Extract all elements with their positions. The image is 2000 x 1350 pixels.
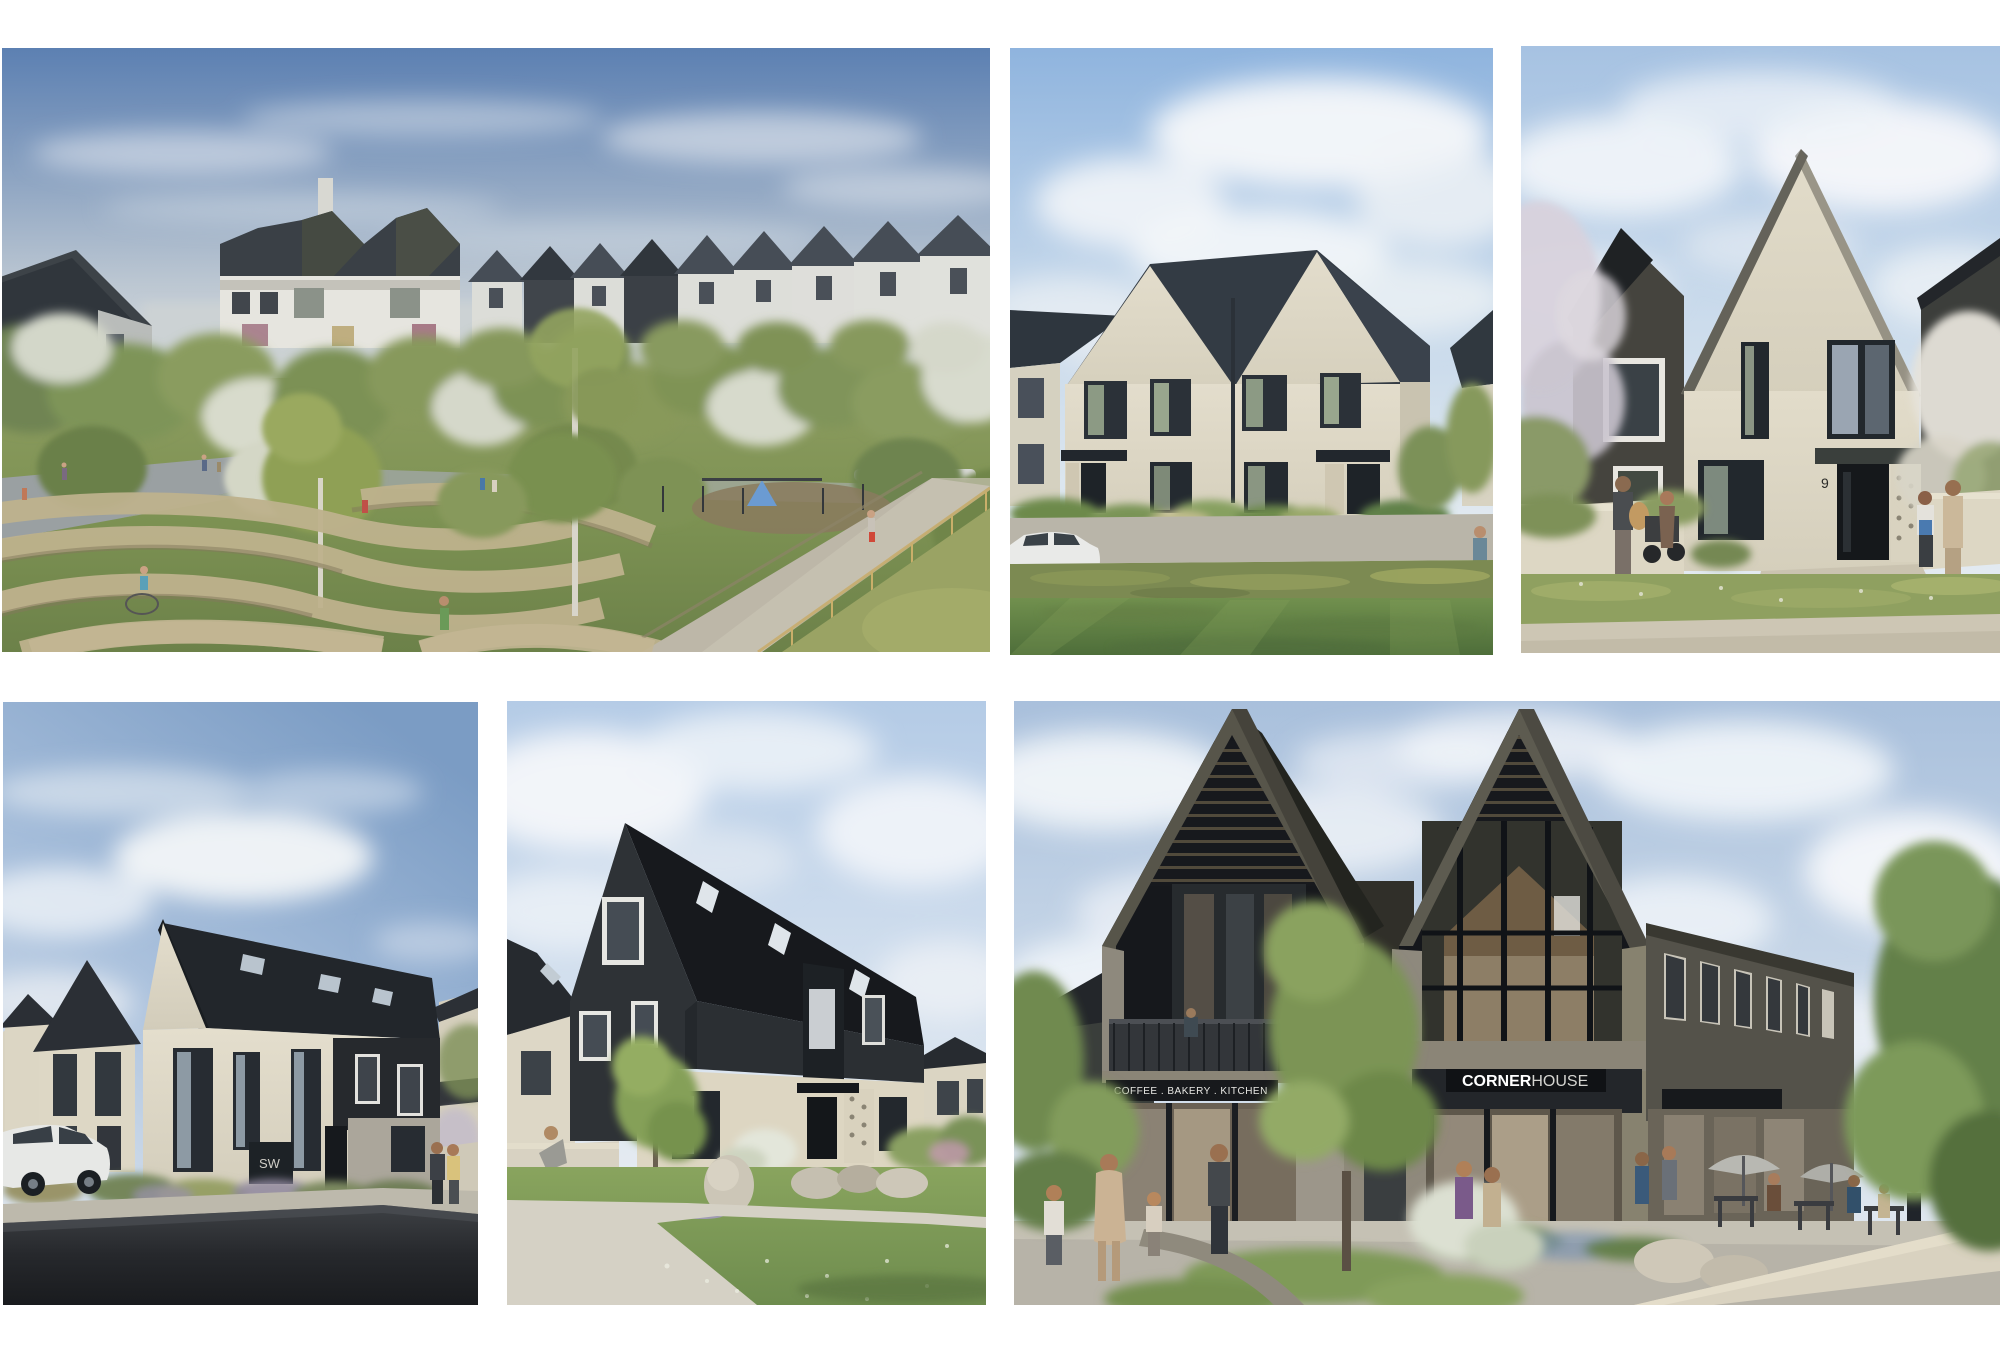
svg-text:CORNERHOUSE: CORNERHOUSE: [1462, 1073, 1588, 1090]
svg-text:9: 9: [1821, 475, 1829, 491]
svg-text:COFFEE . BAKERY . KITCHEN: COFFEE . BAKERY . KITCHEN: [1114, 1086, 1268, 1097]
svg-text:SW: SW: [259, 1156, 281, 1171]
